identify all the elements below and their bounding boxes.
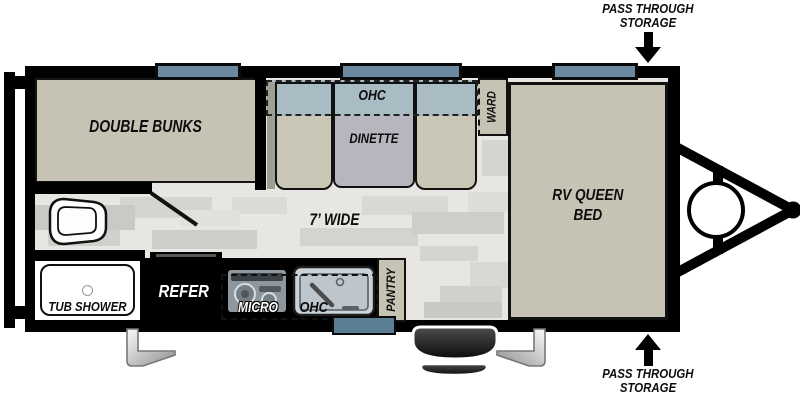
ward-label: WARD: [487, 91, 499, 123]
floor-patch: [424, 302, 502, 318]
tub-drain-icon: [82, 285, 93, 296]
callout-top: PASS THROUGH STORAGE: [556, 2, 740, 30]
pantry-label: PANTRY: [385, 268, 399, 311]
arrow-down-head-icon: [635, 47, 661, 63]
floorplan: TUB SHOWER REFER MICRO OHC PANTRY OHC DI…: [0, 0, 800, 400]
dinette-ohc-label: OHC: [358, 88, 385, 104]
stabilizer-jack-right-icon: [490, 328, 548, 370]
callout-bottom-line1: PASS THROUGH: [602, 367, 693, 381]
toilet-icon: [44, 196, 110, 248]
arrow-down-icon: [644, 32, 653, 48]
rear-bumper: [4, 72, 15, 328]
pantry: PANTRY: [377, 258, 406, 322]
hitch-icon: [666, 128, 800, 292]
floor-patch: [412, 212, 504, 234]
stabilizer-jack-left-icon: [124, 328, 182, 370]
floor-patch: [470, 262, 508, 288]
double-bunks-label: DOUBLE BUNKS: [89, 116, 202, 137]
wall-dinette-left: [255, 66, 266, 190]
wheel-icon: [409, 325, 503, 377]
wardrobe: WARD: [478, 78, 508, 136]
arrow-up-icon: [644, 350, 653, 366]
callout-bottom-line2: STORAGE: [620, 381, 676, 395]
callout-top-line2: STORAGE: [620, 16, 676, 30]
dinette-label: DINETTE: [349, 131, 398, 146]
refer-label: REFER: [159, 281, 209, 302]
arrow-up-head-icon: [635, 334, 661, 350]
floor-patch: [482, 140, 508, 176]
floor-patch: [152, 230, 257, 249]
wall-bath-top: [33, 250, 145, 261]
queen-bed-label-line2: BED: [574, 206, 603, 226]
tub-shower-label: TUB SHOWER: [48, 299, 126, 314]
wall-bunks-bottom: [33, 182, 152, 194]
callout-top-line1: PASS THROUGH: [602, 2, 693, 16]
floor-patch: [468, 192, 508, 212]
window-bunks: [155, 63, 241, 80]
floor-patch: [420, 246, 478, 261]
propane-tank-icon: [689, 183, 743, 237]
window-bed: [552, 63, 638, 80]
door-swing-icon: [147, 189, 203, 231]
kitchen-counter-edge-line: [156, 254, 216, 257]
window-dinette: [340, 63, 462, 80]
callout-bottom: PASS THROUGH STORAGE: [556, 367, 740, 395]
width-label: 7’ WIDE: [309, 211, 359, 230]
kitchen-overhead-cabinet-outline: [221, 274, 378, 320]
queen-bed-label-line1: RV QUEEN: [552, 186, 623, 206]
floor-patch: [300, 228, 418, 246]
entry-door: [332, 316, 396, 335]
